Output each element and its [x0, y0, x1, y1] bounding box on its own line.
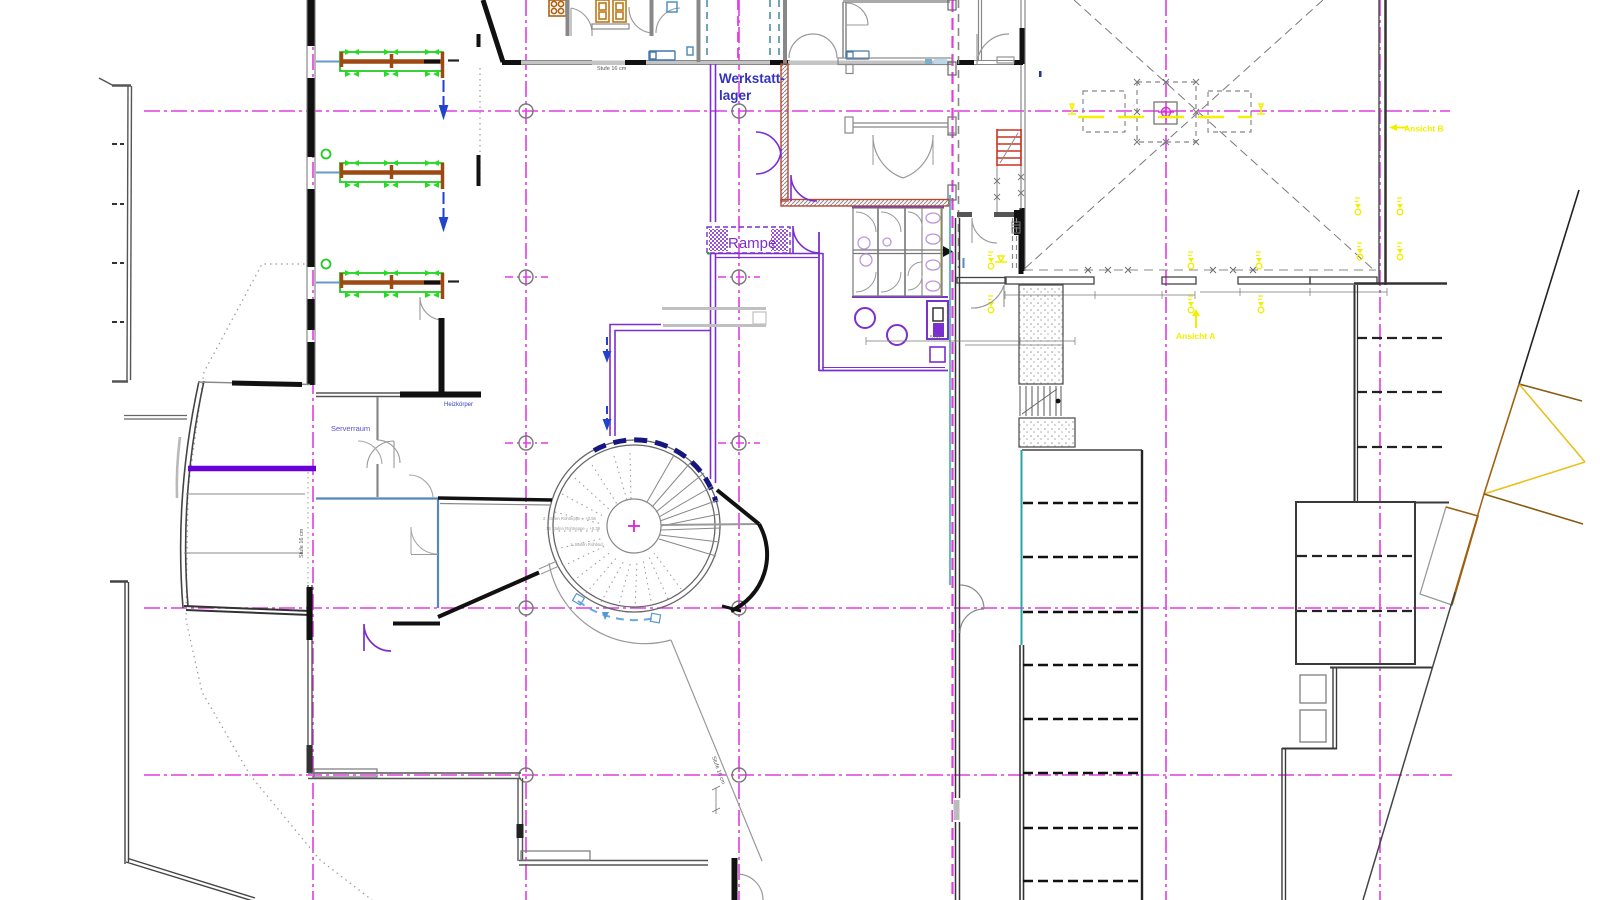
svg-text:Stufe 16 cm: Stufe 16 cm [299, 528, 305, 558]
svg-text:Werkstatt-: Werkstatt- [719, 71, 785, 86]
svg-text:16 Stufen Rohtreppe = +0.38: 16 Stufen Rohtreppe = +0.38 [546, 526, 601, 531]
svg-text:Stufe 16 cm: Stufe 16 cm [597, 66, 627, 72]
svg-text:lager: lager [719, 88, 752, 103]
svg-text:Ansicht A: Ansicht A [1176, 331, 1215, 341]
svg-text:Rampe: Rampe [728, 235, 776, 252]
svg-text:2. Stufen Rohtreppe = +0.56: 2. Stufen Rohtreppe = +0.56 [543, 516, 597, 521]
svg-text:1. Stufen Rohbod.: 1. Stufen Rohbod. [570, 542, 604, 547]
svg-text:Serverraum: Serverraum [331, 424, 370, 433]
svg-text:Ansicht B: Ansicht B [1404, 124, 1444, 134]
svg-text:Heizkörper: Heizkörper [444, 402, 473, 408]
svg-text:5.00: 5.00 [930, 335, 940, 341]
